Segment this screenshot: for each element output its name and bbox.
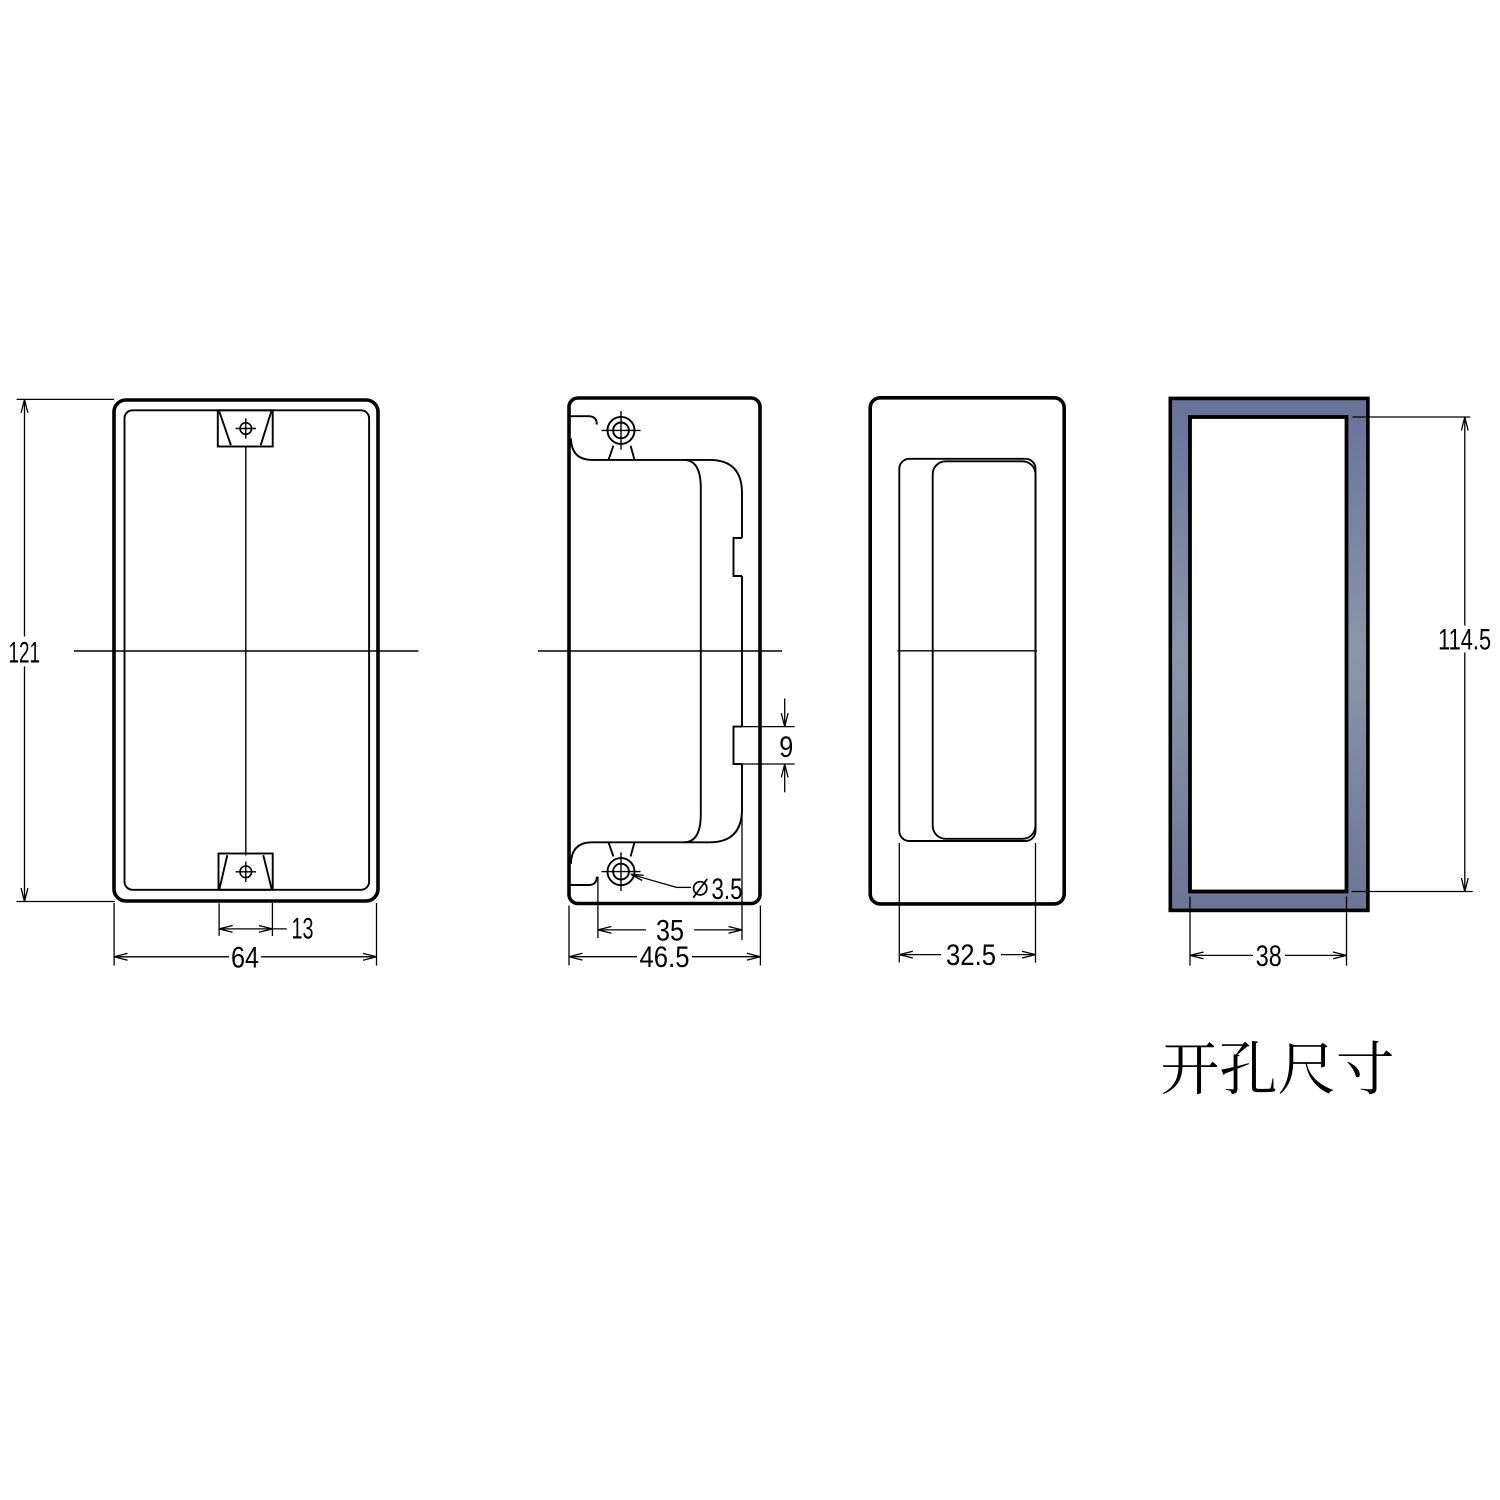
svg-text:46.5: 46.5 xyxy=(640,941,690,974)
svg-text:9: 9 xyxy=(779,731,793,764)
svg-text:121: 121 xyxy=(9,636,41,669)
svg-text:64: 64 xyxy=(231,942,259,975)
svg-text:32.5: 32.5 xyxy=(946,939,996,972)
svg-text:13: 13 xyxy=(292,913,314,946)
svg-text:3.5: 3.5 xyxy=(712,873,743,906)
svg-text:114.5: 114.5 xyxy=(1438,624,1491,657)
svg-text:38: 38 xyxy=(1256,940,1282,973)
